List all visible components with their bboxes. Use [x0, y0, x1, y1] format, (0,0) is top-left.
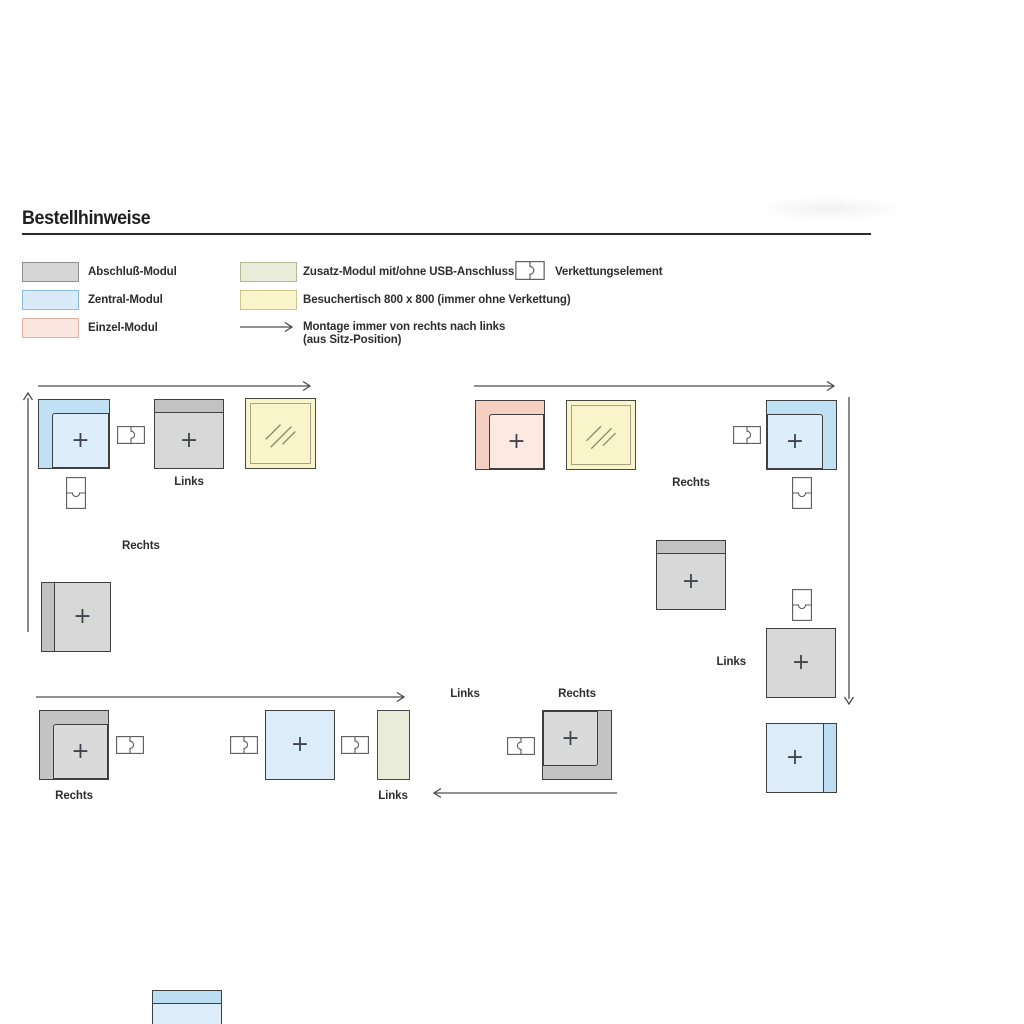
- chain-link-icon: [792, 589, 812, 621]
- chain-link-icon: [116, 736, 144, 754]
- d3-label-rechts: Rechts: [39, 790, 109, 802]
- module-plus: +: [792, 652, 810, 674]
- d2-arrow-right: [474, 380, 840, 392]
- montage-direction-arrow-icon: [240, 321, 298, 333]
- page: Bestellhinweise Abschluß-Modul Zentral-M…: [0, 0, 1024, 1024]
- module-abschluss-left: +: [41, 582, 111, 652]
- legend-label-zentral: Zentral-Modul: [88, 294, 163, 307]
- chain-link-icon: [230, 736, 258, 754]
- module-besuchertisch: [245, 398, 316, 469]
- legend-label-besuchertisch: Besuchertisch 800 x 800 (immer ohne Verk…: [303, 294, 571, 307]
- module-plus: +: [180, 430, 198, 452]
- module-zentral-right: +: [766, 723, 837, 793]
- d1-label-links: Links: [154, 476, 224, 488]
- legend-label-einzel: Einzel-Modul: [88, 322, 158, 335]
- module-abschluss-top: +: [154, 399, 224, 469]
- module-plus: +: [71, 741, 89, 763]
- module-plus: +: [73, 606, 91, 628]
- scan-smudge: [755, 196, 905, 222]
- legend-swatch-zentral: [22, 290, 79, 310]
- module-plus: +: [291, 734, 309, 756]
- d1-arrow-up: [22, 392, 34, 632]
- module-plus: +: [507, 431, 525, 453]
- d2-arrow-down: [843, 397, 855, 705]
- chain-link-icon: [507, 737, 535, 755]
- module-plus: +: [71, 430, 89, 452]
- module-abschluss-top: +: [656, 540, 726, 610]
- d4-arrow-left: [428, 787, 618, 799]
- glass-hatch-icon: [567, 401, 635, 469]
- verkettungselement-icon: [515, 261, 545, 280]
- d3-arrow-right: [36, 691, 410, 703]
- module-plus: +: [561, 728, 579, 750]
- d2-label-links: Links: [684, 656, 746, 668]
- chain-link-icon: [792, 477, 812, 509]
- module-plus: +: [786, 747, 804, 769]
- legend-label-abschluss: Abschluß-Modul: [88, 266, 177, 279]
- legend-swatch-einzel: [22, 318, 79, 338]
- glass-hatch-icon: [246, 399, 315, 468]
- legend-swatch-besuchertisch: [240, 290, 297, 310]
- legend-swatch-zusatz: [240, 262, 297, 282]
- module-plus: +: [786, 431, 804, 453]
- module-zusatz: [377, 710, 410, 780]
- module-zentral-corner: +: [766, 400, 837, 470]
- d2-label-rechts: Rechts: [656, 477, 726, 489]
- chain-link-icon: [733, 426, 761, 444]
- module-plus: +: [682, 571, 700, 593]
- d1-label-rechts: Rechts: [122, 540, 160, 552]
- legend-label-zusatz: Zusatz-Modul mit/ohne USB-Anschluss: [303, 266, 514, 279]
- module-einzel-corner: +: [475, 400, 545, 470]
- module-zentral-plain: +: [265, 710, 335, 780]
- page-title: Bestellhinweise: [22, 208, 150, 230]
- chain-link-icon: [341, 736, 369, 754]
- title-underline: [22, 233, 871, 235]
- module-plus: +: [178, 1021, 196, 1024]
- legend-label-montage-2: (aus Sitz-Position): [303, 334, 401, 347]
- module-abschluss-plain: +: [766, 628, 836, 698]
- module-abschluss-corner: +: [39, 710, 109, 780]
- legend-label-verkettung: Verkettungselement: [555, 266, 663, 279]
- module-besuchertisch: [566, 400, 636, 470]
- chain-link-icon: [66, 477, 86, 509]
- d3-label-links: Links: [360, 790, 426, 802]
- chain-link-icon: [117, 426, 145, 444]
- module-zentral-top: +: [152, 990, 222, 1024]
- d1-arrow-right: [38, 380, 316, 392]
- legend-label-montage-1: Montage immer von rechts nach links: [303, 321, 505, 334]
- legend-swatch-abschluss: [22, 262, 79, 282]
- d4-label-rechts: Rechts: [542, 688, 612, 700]
- module-zentral-corner: +: [38, 399, 110, 469]
- d4-label-links: Links: [430, 688, 500, 700]
- module-abschluss-corner-br: +: [542, 710, 612, 780]
